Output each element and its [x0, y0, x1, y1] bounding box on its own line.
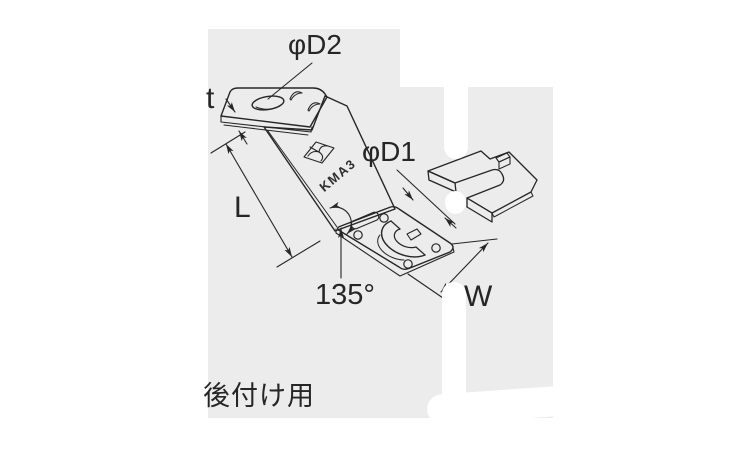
brand-mark-icon — [304, 142, 334, 163]
angle-callout — [330, 207, 351, 278]
label-thickness: t — [206, 84, 214, 114]
leader-top-hole — [268, 63, 312, 99]
label-usage-caption: 後付け用 — [203, 383, 315, 410]
shim-plate — [428, 151, 537, 222]
technical-drawing — [0, 0, 750, 450]
label-base-hole-diameter: φD1 — [362, 138, 416, 166]
label-bend-angle: 135° — [315, 281, 375, 310]
highlight-streak-top — [444, 78, 468, 159]
claw-cutout-icon — [290, 92, 302, 100]
highlight-streak-middle — [442, 282, 466, 409]
catalog-diagram: t φD2 φD1 L 135° W KMA3 後付け用 — [0, 0, 750, 450]
bracket-base-plate — [336, 207, 454, 276]
label-top-hole-diameter: φD2 — [288, 31, 342, 59]
claw-cutout-icon — [308, 103, 320, 111]
keyhole-slot-cutout — [378, 221, 425, 260]
label-base-width: W — [464, 282, 492, 312]
dimension-length — [211, 132, 320, 267]
label-arm-length: L — [234, 193, 251, 223]
highlight-streak-dot — [445, 191, 466, 214]
